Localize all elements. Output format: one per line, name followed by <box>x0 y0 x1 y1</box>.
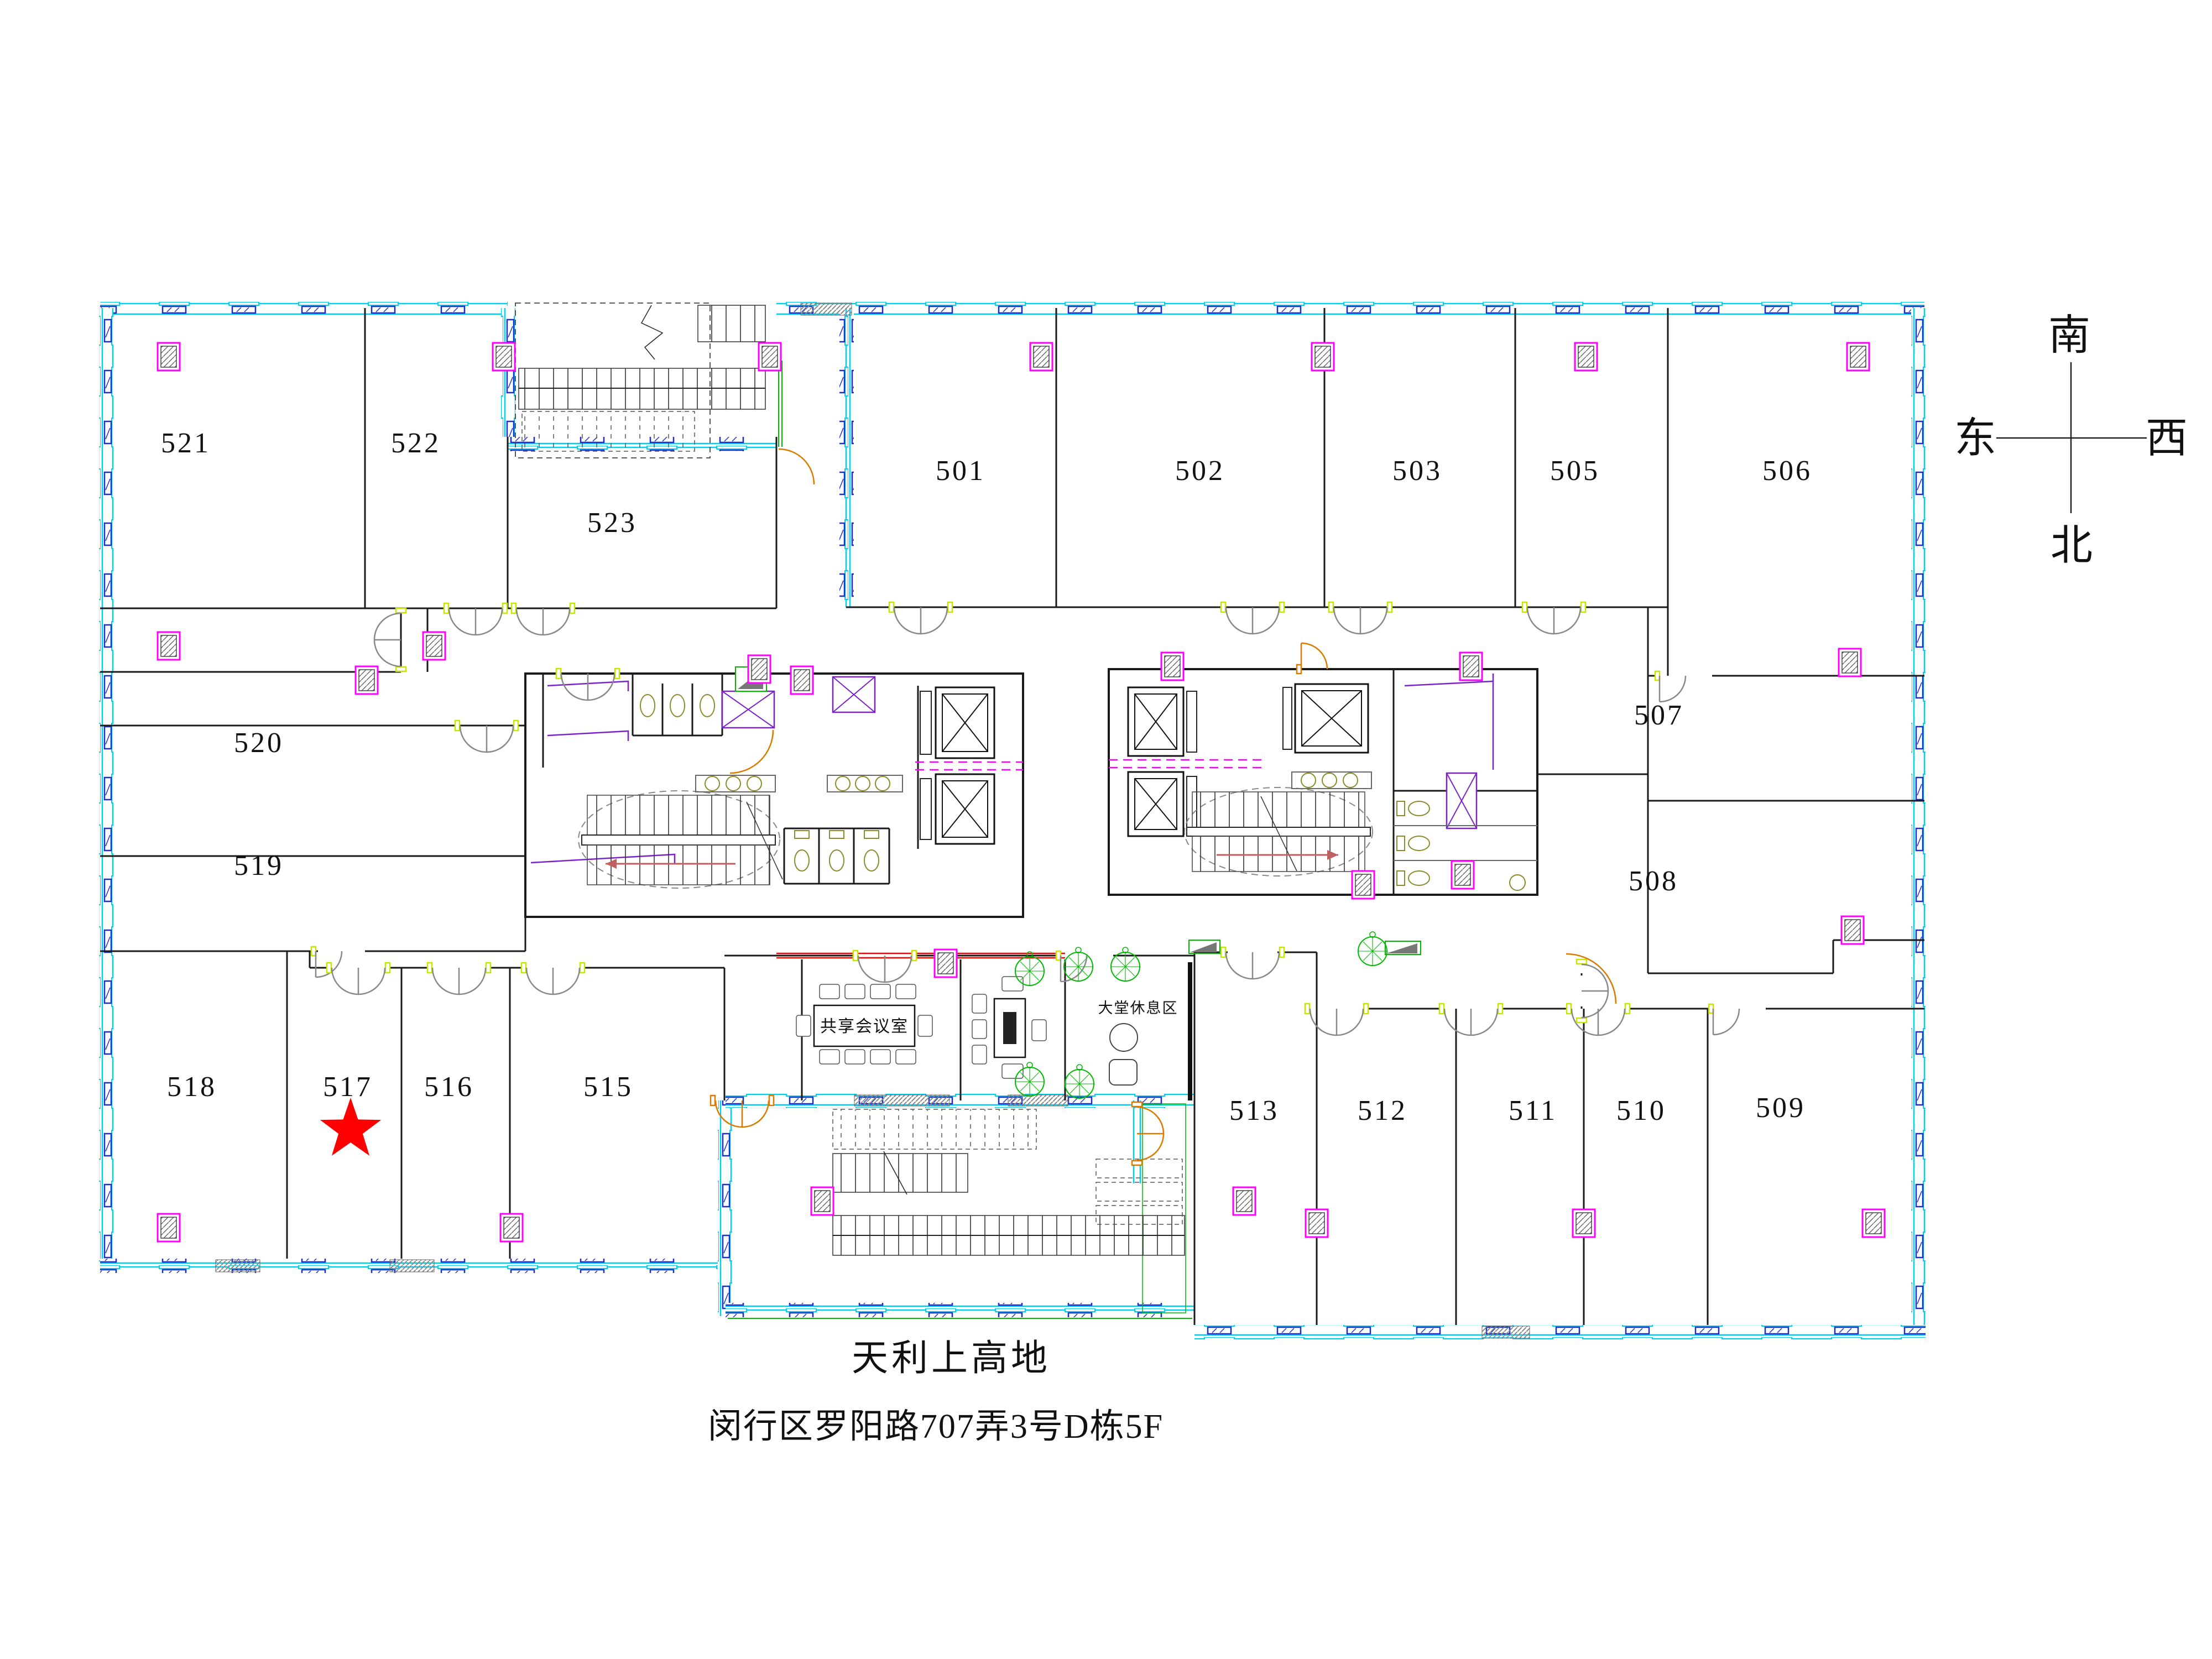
break-line <box>641 305 662 359</box>
compass: 南 东 西 北 <box>1954 312 2188 569</box>
exterior-wall-left <box>99 308 113 1262</box>
stair-block-west-wall <box>718 1100 732 1316</box>
room-label-520: 520 <box>234 727 284 759</box>
building-name: 天利上高地 <box>852 1338 1051 1379</box>
room-label-503: 503 <box>1392 455 1442 487</box>
exterior-wall-bottom-right <box>1194 1325 1926 1339</box>
room-label-510: 510 <box>1616 1095 1666 1126</box>
room-label-518: 518 <box>167 1071 217 1103</box>
lobby-round-table <box>1110 1024 1138 1051</box>
exterior-walls <box>99 302 1926 1339</box>
area-label-lobby-rest: 大堂休息区 <box>1098 1000 1178 1016</box>
floor-plan-page: 521 522 523 501 502 503 505 506 507 508 … <box>0 0 2212 1659</box>
floor-plan-drawing: 521 522 523 501 502 503 505 506 507 508 … <box>0 0 2212 1659</box>
door-513 <box>1221 947 1284 979</box>
room-label-519: 519 <box>234 850 284 881</box>
compass-cross <box>1996 362 2147 513</box>
room-label-509: 509 <box>1756 1092 1806 1124</box>
room-label-513: 513 <box>1229 1095 1279 1126</box>
room-label-508: 508 <box>1629 865 1678 897</box>
door-meeting-room <box>853 951 916 982</box>
compass-west: 西 <box>2146 415 2188 462</box>
room-501-west-wall <box>839 308 854 607</box>
door-507 <box>1655 671 1686 702</box>
compass-east: 东 <box>1954 415 1996 462</box>
building-address: 闵行区罗阳路707弄3号D栋5F <box>708 1408 1164 1446</box>
door-stair-strip <box>1132 1102 1164 1165</box>
lobby-couch <box>1109 1060 1137 1085</box>
stair-block-south-wall <box>726 1303 1194 1317</box>
core-left <box>578 667 1023 888</box>
room-label-512: 512 <box>1358 1095 1407 1126</box>
door-512 <box>1305 1004 1368 1035</box>
room-label-523: 523 <box>587 507 637 539</box>
door-511 <box>1439 1004 1503 1035</box>
stair-strip-wall <box>1134 1100 1140 1183</box>
room-label-522: 522 <box>391 427 441 459</box>
presentation-room-furniture <box>972 977 1046 1078</box>
room-label-511: 511 <box>1509 1095 1557 1126</box>
door-509 <box>1709 1004 1739 1035</box>
room-label-506: 506 <box>1762 455 1812 487</box>
door-corridor-east <box>1577 959 1608 1022</box>
compass-south: 南 <box>2048 312 2090 359</box>
room-label-507: 507 <box>1634 700 1684 731</box>
room-label-502: 502 <box>1175 455 1225 487</box>
room-522-east-wall <box>501 308 515 437</box>
highlight-star-517 <box>320 1098 381 1156</box>
compass-north: 北 <box>2051 523 2093 569</box>
room-label-505: 505 <box>1550 455 1600 487</box>
fire-stair-top <box>515 303 765 458</box>
stair-block-bottom <box>833 1109 1185 1255</box>
oval-stair-left <box>578 791 782 888</box>
exterior-wall-top-left <box>100 302 508 316</box>
title-block: 天利上高地 闵行区罗阳路707弄3号D栋5F <box>708 1338 1164 1446</box>
interior-walls <box>100 308 1924 1325</box>
room-label-517: 517 <box>323 1071 373 1103</box>
oval-stair-right <box>1185 787 1373 876</box>
plants <box>1015 932 1387 1098</box>
room-label-515: 515 <box>583 1071 633 1103</box>
door-516 <box>427 963 491 994</box>
door-515 <box>521 963 585 994</box>
room-label-521: 521 <box>161 427 211 459</box>
room-label-501: 501 <box>936 455 985 487</box>
exterior-wall-right <box>1911 308 1926 1339</box>
exterior-wall-top-right <box>776 302 1924 316</box>
area-label-meeting-room: 共享会议室 <box>820 1018 909 1036</box>
room-label-516: 516 <box>424 1071 474 1103</box>
core-right <box>1109 684 1537 890</box>
